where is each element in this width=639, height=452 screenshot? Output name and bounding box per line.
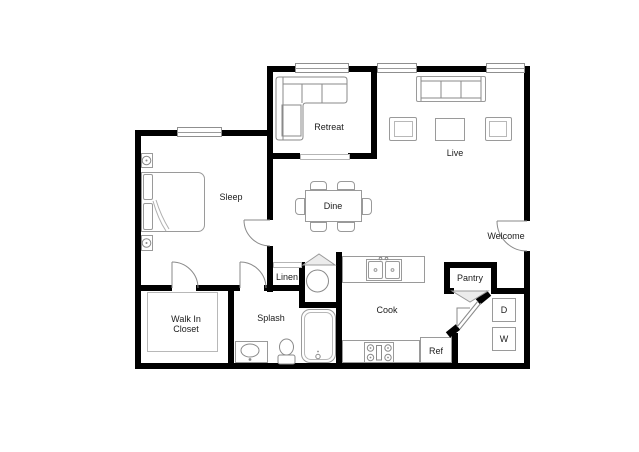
- wall-fridge-right: [452, 333, 458, 369]
- room-label-linen: Linen: [276, 272, 298, 282]
- wall-retreat-bottom-right: [348, 153, 377, 159]
- window: [377, 63, 417, 73]
- wall-retreat-live-divider: [371, 66, 377, 159]
- sofa: [416, 76, 486, 102]
- window: [177, 127, 222, 137]
- floor-plan: Sleep Retreat Live Dine Welcome Linen Sp…: [0, 0, 639, 452]
- cased-opening-linen: [273, 262, 302, 268]
- coffee-table: [435, 118, 465, 141]
- nightstand: [141, 153, 153, 168]
- room-label-cook: Cook: [376, 305, 397, 315]
- armchair-cushion: [489, 121, 507, 137]
- sink-bowl: [385, 261, 400, 279]
- wall-closets-c: [264, 285, 302, 291]
- wall-pantry-bottom-stub: [444, 288, 454, 294]
- window: [486, 63, 525, 73]
- window: [295, 63, 349, 73]
- stove: [364, 342, 394, 363]
- dining-chair: [337, 222, 355, 232]
- pillow: [143, 174, 153, 200]
- appliance-label-ref: Ref: [429, 346, 443, 356]
- dining-chair: [310, 181, 327, 190]
- wall-retreat-left: [267, 66, 273, 136]
- wall-bottom: [135, 363, 530, 369]
- room-label-sleep: Sleep: [219, 192, 242, 202]
- dining-chair: [310, 222, 327, 232]
- toilet: [278, 339, 295, 364]
- room-label-walk-in-closet: Walk In Closet: [171, 314, 201, 334]
- bifold-door-pantry: [452, 291, 488, 302]
- dining-chair: [337, 181, 355, 190]
- walk-in-closet-line1: Walk In: [171, 314, 201, 324]
- door-swing-sleep: [244, 220, 270, 246]
- room-label-retreat: Retreat: [314, 122, 344, 132]
- wall-pantry-top: [444, 262, 497, 268]
- bifold-door-water-heater: [303, 254, 335, 265]
- wall-right-lower: [524, 251, 530, 369]
- water-heater: [307, 270, 329, 292]
- door-swing-walk-in-closet: [172, 262, 198, 288]
- armchair-cushion: [394, 121, 413, 137]
- wall-right-upper: [524, 66, 530, 221]
- wall-sleep-right-upper: [267, 136, 273, 220]
- bathroom-vanity: [235, 341, 268, 363]
- cased-opening-retreat: [300, 154, 350, 160]
- room-label-live: Live: [447, 148, 464, 158]
- appliance-label-washer: W: [500, 334, 509, 344]
- room-label-pantry: Pantry: [457, 273, 483, 283]
- sink-bowl: [368, 261, 383, 279]
- walk-in-closet-line2: Closet: [171, 324, 201, 334]
- wall-closets-a: [141, 285, 172, 291]
- wall-wic-splash-divider: [228, 291, 234, 363]
- room-label-dine: Dine: [324, 201, 343, 211]
- dining-chair: [295, 198, 305, 215]
- door-swing-splash: [240, 262, 266, 288]
- appliance-label-dryer: D: [501, 305, 508, 315]
- pillow: [143, 203, 153, 230]
- nightstand: [141, 235, 153, 251]
- room-label-welcome: Welcome: [487, 231, 524, 241]
- bathtub-inner: [304, 312, 333, 360]
- wall-laundry-top: [497, 288, 530, 294]
- dining-chair: [362, 198, 372, 215]
- room-label-splash: Splash: [257, 313, 285, 323]
- diagonal-door-laundry: [448, 293, 489, 335]
